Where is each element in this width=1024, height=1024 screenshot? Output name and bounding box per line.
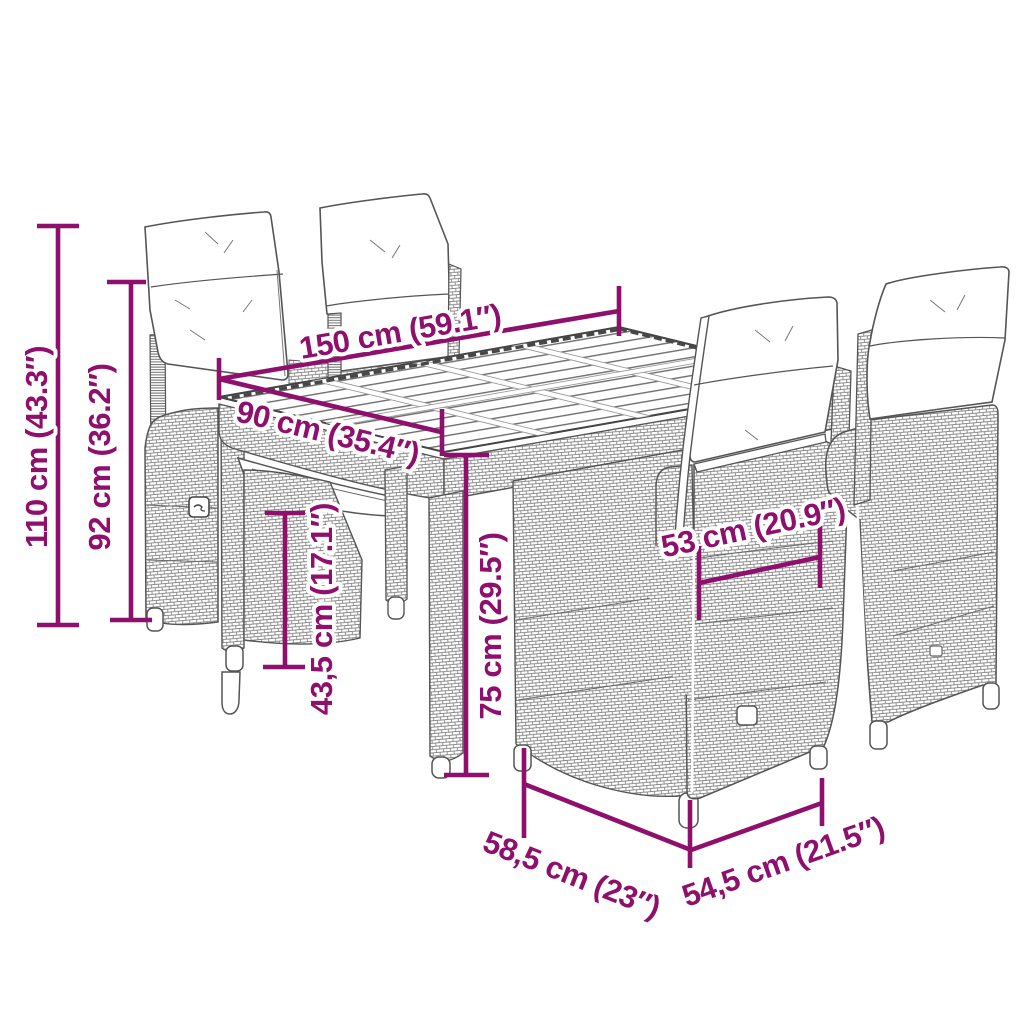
svg-text:75 cm (29.5″): 75 cm (29.5″) <box>473 532 508 719</box>
svg-text:92 cm (36.2″): 92 cm (36.2″) <box>82 363 117 550</box>
svg-text:110 cm (43.3″): 110 cm (43.3″) <box>19 346 54 548</box>
svg-text:43,5 cm (17.1″): 43,5 cm (17.1″) <box>304 503 339 715</box>
